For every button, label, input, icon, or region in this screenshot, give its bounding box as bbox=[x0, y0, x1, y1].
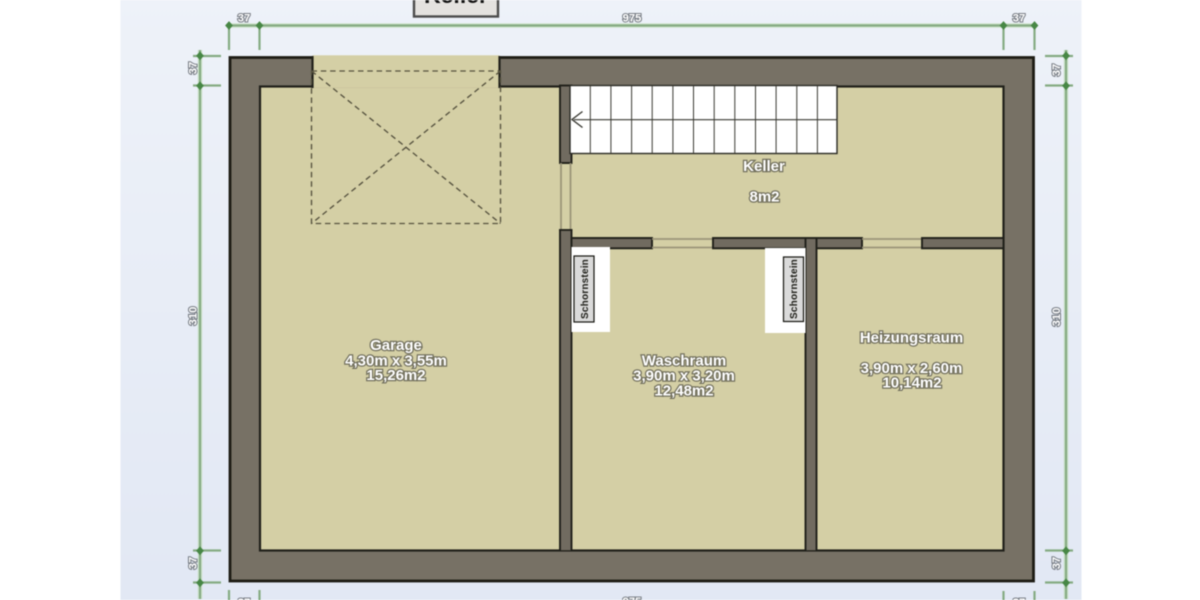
svg-text:37: 37 bbox=[1051, 64, 1063, 76]
svg-text:37: 37 bbox=[1051, 557, 1063, 569]
svg-text:310: 310 bbox=[188, 307, 200, 326]
svg-text:Heizungsraum: Heizungsraum bbox=[860, 330, 963, 347]
svg-text:Keller: Keller bbox=[743, 158, 785, 175]
svg-text:975: 975 bbox=[623, 13, 642, 25]
svg-text:10,14m2: 10,14m2 bbox=[882, 375, 941, 392]
svg-text:Schornstein: Schornstein bbox=[789, 259, 800, 319]
svg-text:37: 37 bbox=[188, 62, 200, 74]
svg-text:8m2: 8m2 bbox=[749, 189, 779, 206]
svg-text:37: 37 bbox=[1013, 13, 1025, 25]
svg-text:Keller: Keller bbox=[424, 0, 488, 8]
svg-text:12,48m2: 12,48m2 bbox=[654, 383, 713, 400]
svg-text:975: 975 bbox=[623, 596, 642, 600]
svg-text:Schornstein: Schornstein bbox=[580, 259, 591, 319]
svg-text:37: 37 bbox=[238, 13, 250, 25]
svg-text:310: 310 bbox=[1051, 308, 1063, 327]
svg-text:Garage: Garage bbox=[370, 337, 422, 354]
svg-text:37: 37 bbox=[188, 557, 200, 569]
svg-text:15,26m2: 15,26m2 bbox=[366, 367, 425, 384]
